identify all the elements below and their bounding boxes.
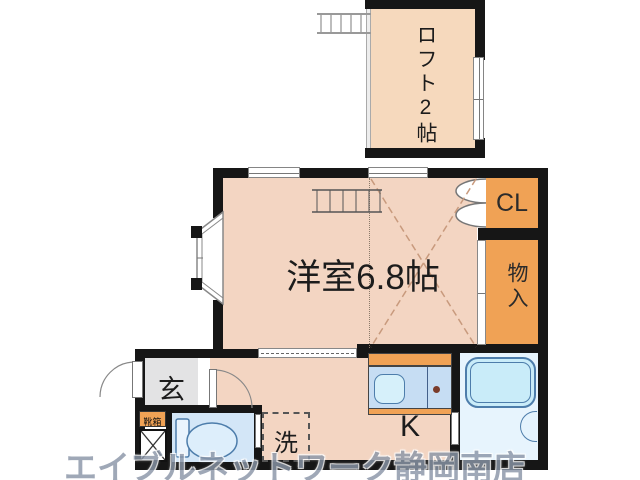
sliding-door-main-kitchen — [258, 348, 357, 358]
loft-label: ロフト2帖 — [410, 24, 440, 146]
storage-label: 物入 — [501, 262, 531, 312]
window-top-left — [248, 167, 300, 178]
wall-right — [538, 168, 548, 470]
loft-wall-top — [365, 0, 485, 9]
kitchen-counter-divider — [427, 367, 428, 409]
main-room-label: 洋室6.8帖 — [238, 249, 488, 300]
bay-window — [188, 206, 228, 310]
floorplan-canvas: ロフト2帖 — [0, 0, 640, 480]
loft-wall-bottom — [365, 148, 485, 158]
wall-entrance-top — [135, 349, 258, 358]
kitchen-label: K — [393, 410, 427, 444]
entrance-label: 玄 — [145, 368, 198, 407]
room-ladder-icon — [312, 187, 382, 215]
loft-ladder-icon — [317, 11, 371, 36]
loft-window — [473, 57, 484, 140]
hall-door-leaf — [209, 369, 217, 408]
window-top-right — [368, 167, 428, 178]
kitchen-sink-icon — [374, 374, 405, 404]
hall-door-arc-icon — [212, 368, 254, 410]
bathtub-icon — [465, 357, 536, 408]
kitchen-cabinet-top — [368, 353, 452, 366]
shoebox: 靴箱 — [139, 411, 166, 427]
watermark: エイブルネットワーク静岡南店 — [64, 441, 526, 480]
stove-burner-icon — [433, 386, 440, 393]
closet-label: CL — [486, 178, 538, 228]
shoebox-label: 靴箱 — [143, 417, 161, 427]
entrance-door-leaf — [132, 361, 143, 398]
loft-wall-right-upper — [475, 0, 485, 60]
